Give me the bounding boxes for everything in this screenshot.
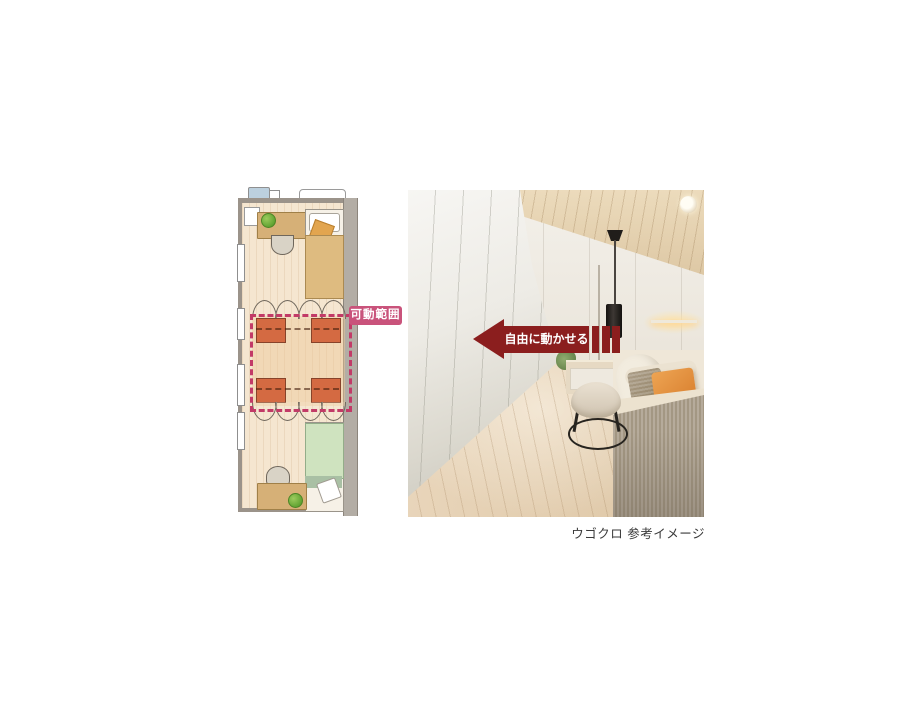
free-move-arrow-label: 自由に動かせる xyxy=(504,326,589,353)
window-icon xyxy=(237,412,245,450)
chair-top xyxy=(271,235,294,255)
floor-plan xyxy=(238,186,360,520)
motion-bar-icon xyxy=(592,326,599,353)
motion-bar-icon xyxy=(602,326,610,353)
blanket-green xyxy=(305,423,344,479)
window-icon xyxy=(237,244,245,282)
movable-range-boundary xyxy=(250,314,352,412)
blanket-tan xyxy=(305,235,344,299)
photo-caption: ウゴクロ 参考イメージ xyxy=(450,523,705,542)
window-icon xyxy=(237,364,245,406)
movable-range-label: 可動範囲 xyxy=(349,306,402,325)
plant-icon xyxy=(288,493,303,508)
ceiling-light-icon xyxy=(680,196,697,213)
page: 可動範囲 自由に動かせる xyxy=(0,0,920,704)
wall-lamp-icon xyxy=(651,320,697,323)
plant-icon xyxy=(261,213,276,228)
stool-seat xyxy=(571,382,621,418)
pendant-cord xyxy=(614,240,616,305)
room-photo: 自由に動かせる xyxy=(408,190,704,517)
stool-ring xyxy=(568,418,628,450)
striped-throw xyxy=(613,395,704,517)
window-icon xyxy=(237,308,245,340)
arrow-left-icon xyxy=(473,319,504,359)
wall-top xyxy=(238,198,355,203)
motion-bar-icon xyxy=(612,326,620,353)
